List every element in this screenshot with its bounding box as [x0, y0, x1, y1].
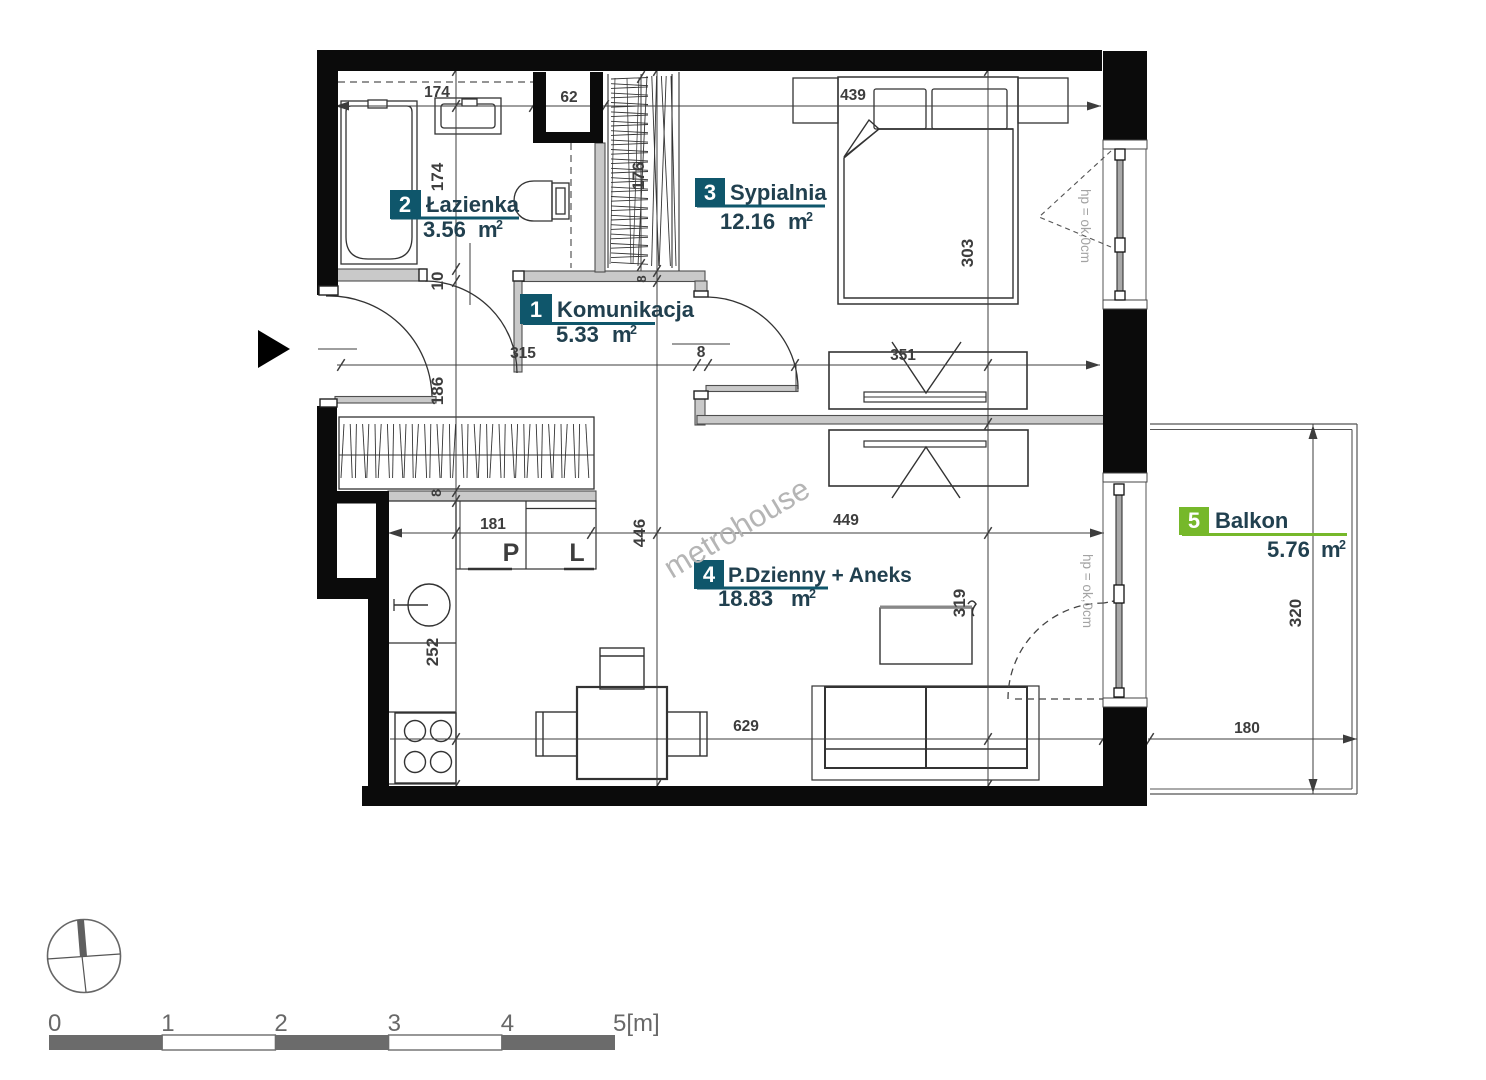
- svg-text:181: 181: [480, 516, 506, 533]
- svg-text:0: 0: [48, 1010, 61, 1037]
- svg-text:18.83: 18.83: [718, 586, 773, 611]
- svg-text:8: 8: [428, 489, 444, 497]
- svg-text:315: 315: [510, 345, 536, 362]
- svg-text:3: 3: [388, 1010, 401, 1037]
- svg-text:P: P: [503, 539, 520, 567]
- svg-text:180: 180: [1234, 720, 1260, 737]
- svg-text:2: 2: [809, 587, 816, 601]
- svg-text:449: 449: [833, 512, 859, 529]
- svg-text:5[m]: 5[m]: [613, 1010, 660, 1037]
- svg-text:8: 8: [634, 275, 649, 282]
- svg-text:176: 176: [629, 162, 648, 190]
- svg-text:62: 62: [560, 89, 577, 106]
- svg-text:L: L: [569, 539, 584, 567]
- svg-text:3.56: 3.56: [423, 217, 466, 242]
- svg-text:m: m: [788, 209, 808, 234]
- svg-text:10: 10: [428, 272, 447, 291]
- svg-text:319: 319: [950, 589, 969, 617]
- svg-text:2: 2: [399, 192, 411, 217]
- svg-text:hp = ok,0cm: hp = ok,0cm: [1078, 189, 1093, 263]
- svg-text:252: 252: [423, 638, 442, 666]
- svg-text:2: 2: [806, 210, 813, 224]
- svg-text:439: 439: [840, 87, 866, 104]
- svg-text:8: 8: [697, 344, 706, 361]
- svg-text:5: 5: [1188, 508, 1200, 533]
- svg-text:2: 2: [496, 218, 503, 232]
- svg-text:Sypialnia: Sypialnia: [730, 180, 827, 205]
- svg-text:3: 3: [704, 180, 716, 205]
- svg-text:2: 2: [274, 1010, 287, 1037]
- svg-text:m: m: [612, 322, 632, 347]
- svg-text:2: 2: [1339, 538, 1346, 552]
- svg-text:2: 2: [630, 323, 637, 337]
- svg-text:1: 1: [530, 297, 542, 322]
- svg-text:5.33: 5.33: [556, 322, 599, 347]
- svg-text:P.Dzienny + Aneks: P.Dzienny + Aneks: [728, 564, 912, 587]
- svg-text:629: 629: [733, 718, 759, 735]
- svg-text:Łazienka: Łazienka: [426, 192, 520, 217]
- svg-text:174: 174: [428, 162, 447, 191]
- svg-text:174: 174: [424, 84, 450, 101]
- svg-text:1: 1: [161, 1010, 174, 1037]
- svg-text:351: 351: [890, 347, 916, 364]
- svg-text:hp = ok,0cm: hp = ok,0cm: [1080, 554, 1095, 628]
- svg-text:12.16: 12.16: [720, 209, 775, 234]
- svg-text:Komunikacja: Komunikacja: [557, 297, 695, 322]
- svg-text:Balkon: Balkon: [1215, 508, 1288, 533]
- svg-text:m: m: [478, 217, 498, 242]
- svg-text:320: 320: [1286, 599, 1305, 627]
- svg-text:5.76: 5.76: [1267, 537, 1310, 562]
- svg-text:303: 303: [958, 239, 977, 267]
- svg-text:m: m: [1321, 537, 1341, 562]
- svg-text:4: 4: [501, 1010, 514, 1037]
- svg-text:446: 446: [630, 519, 649, 547]
- svg-text:186: 186: [428, 377, 447, 405]
- svg-text:m: m: [791, 586, 811, 611]
